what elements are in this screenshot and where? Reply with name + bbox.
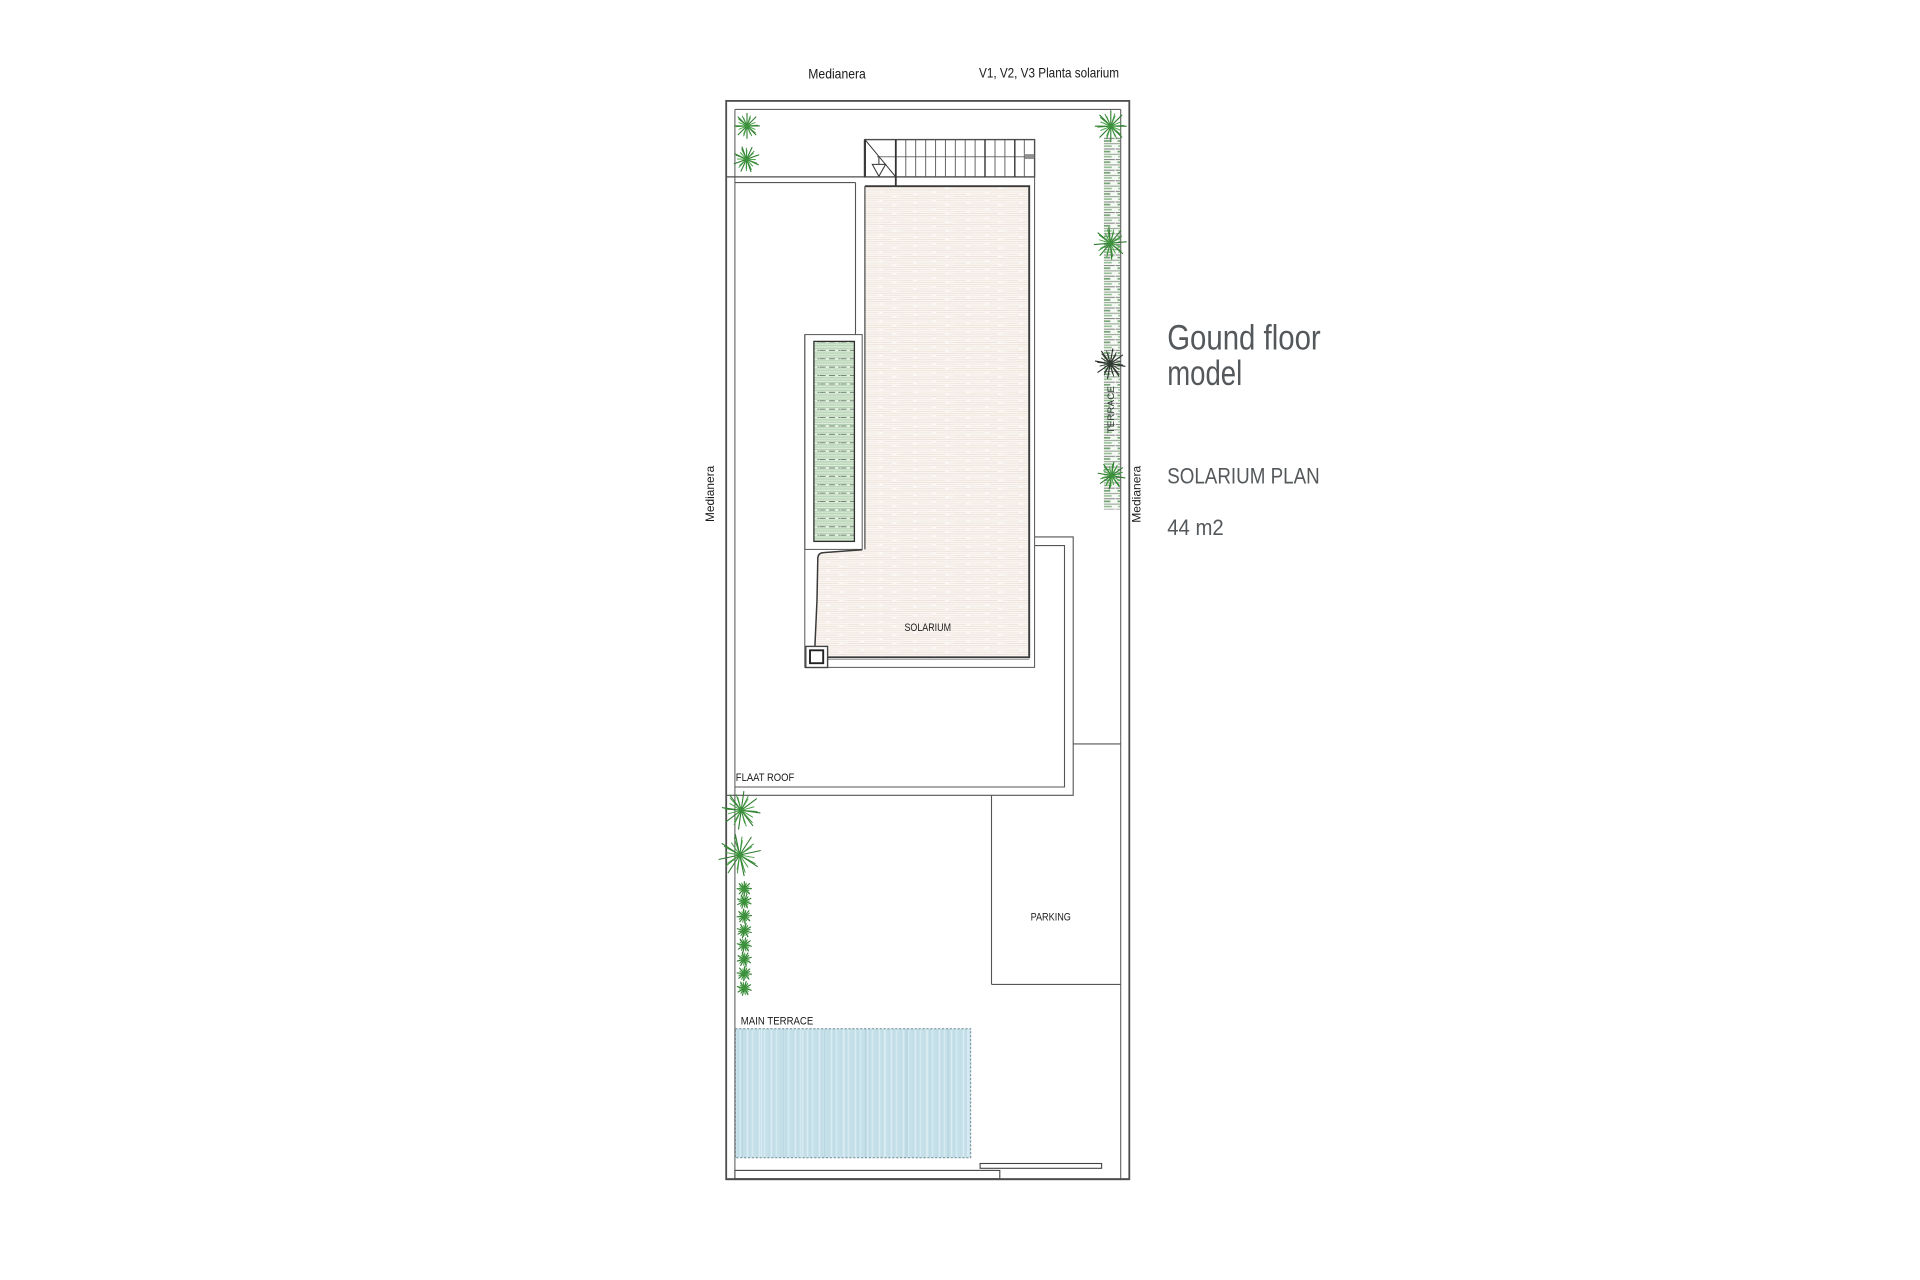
svg-text:SOLARIUM: SOLARIUM (905, 622, 952, 634)
svg-text:SOLARIUM PLAN: SOLARIUM PLAN (1167, 463, 1320, 488)
svg-text:MAIN TERRACE: MAIN TERRACE (741, 1016, 814, 1028)
svg-text:Medianera: Medianera (1130, 465, 1144, 522)
svg-text:TERRACE: TERRACE (1106, 386, 1117, 434)
svg-text:44 m2: 44 m2 (1167, 515, 1224, 540)
svg-text:PARKING: PARKING (1031, 912, 1071, 924)
svg-text:Gound floor: Gound floor (1167, 318, 1321, 357)
svg-text:V1, V2, V3 Planta solarium: V1, V2, V3 Planta solarium (979, 65, 1119, 81)
svg-text:model: model (1167, 354, 1242, 393)
svg-text:Medianera: Medianera (808, 66, 866, 82)
svg-text:Medianera: Medianera (703, 465, 717, 522)
svg-text:FLAAT ROOF: FLAAT ROOF (736, 772, 795, 784)
